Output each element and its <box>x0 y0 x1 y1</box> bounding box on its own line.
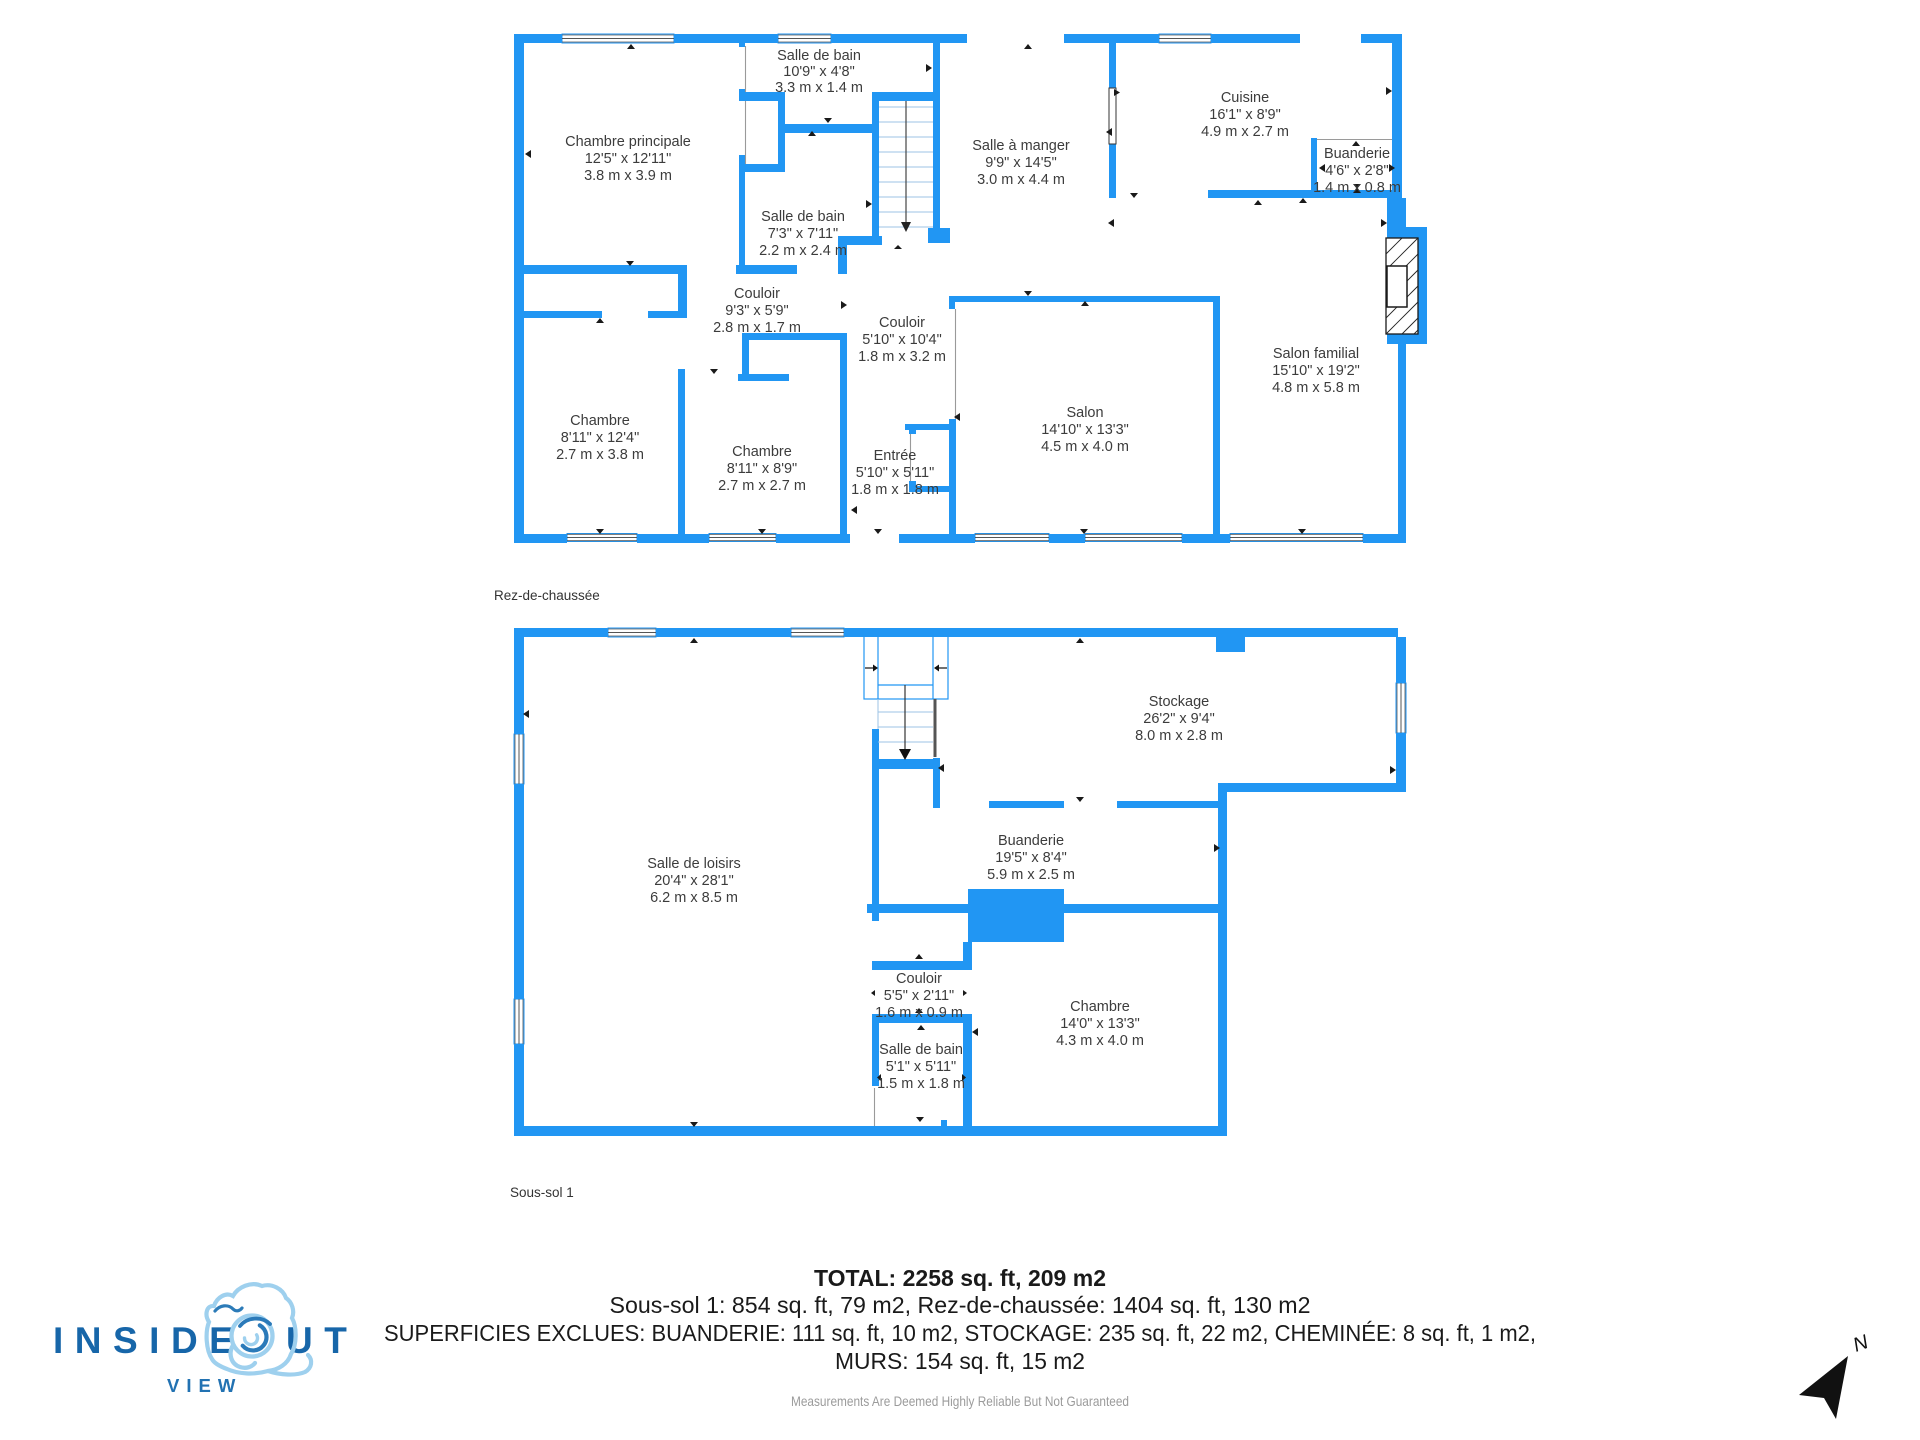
svg-text:4'6" x 2'8": 4'6" x 2'8" <box>1325 163 1388 179</box>
svg-text:2.2 m x 2.4 m: 2.2 m x 2.4 m <box>759 243 847 259</box>
svg-text:14'10" x 13'3": 14'10" x 13'3" <box>1041 422 1129 438</box>
svg-text:INSIDE: INSIDE <box>53 1320 245 1361</box>
svg-text:19'5" x 8'4": 19'5" x 8'4" <box>995 850 1066 866</box>
svg-text:MURS: 154 sq. ft, 15 m2: MURS: 154 sq. ft, 15 m2 <box>835 1348 1085 1374</box>
svg-text:3.0 m x 4.4 m: 3.0 m x 4.4 m <box>977 172 1065 188</box>
svg-text:1.6 m x 0.9 m: 1.6 m x 0.9 m <box>875 1005 963 1021</box>
svg-text:Salon familial: Salon familial <box>1273 346 1359 362</box>
svg-text:15'10" x 19'2": 15'10" x 19'2" <box>1272 363 1360 379</box>
svg-text:Chambre: Chambre <box>1070 999 1130 1015</box>
svg-text:8'11" x 8'9": 8'11" x 8'9" <box>727 461 797 477</box>
svg-text:Chambre principale: Chambre principale <box>565 134 691 150</box>
svg-text:Sous-sol 1: 854 sq. ft, 79 m2,: Sous-sol 1: 854 sq. ft, 79 m2, Rez-de-ch… <box>610 1292 1311 1318</box>
svg-text:Chambre: Chambre <box>732 444 792 460</box>
svg-text:4.9 m x 2.7 m: 4.9 m x 2.7 m <box>1201 124 1289 140</box>
svg-text:Salle à manger: Salle à manger <box>972 138 1070 154</box>
svg-text:5.9 m x 2.5 m: 5.9 m x 2.5 m <box>987 867 1075 883</box>
svg-text:8.0 m x 2.8 m: 8.0 m x 2.8 m <box>1135 728 1223 744</box>
svg-text:5'5" x 2'11": 5'5" x 2'11" <box>884 988 954 1004</box>
svg-text:1.8 m x 1.8 m: 1.8 m x 1.8 m <box>851 482 939 498</box>
svg-text:5'10" x 10'4": 5'10" x 10'4" <box>862 332 942 348</box>
svg-text:Couloir: Couloir <box>896 971 942 987</box>
svg-text:Stockage: Stockage <box>1149 694 1209 710</box>
svg-text:4.8 m x 5.8 m: 4.8 m x 5.8 m <box>1272 380 1360 396</box>
svg-text:2.7 m x 3.8 m: 2.7 m x 3.8 m <box>556 447 644 463</box>
svg-text:12'5" x 12'11": 12'5" x 12'11" <box>585 151 672 167</box>
svg-text:Couloir: Couloir <box>879 315 925 331</box>
svg-text:Salle de bain: Salle de bain <box>777 48 861 64</box>
svg-text:5'10" x 5'11": 5'10" x 5'11" <box>856 465 934 481</box>
svg-text:Entrée: Entrée <box>874 448 917 464</box>
svg-text:TOTAL: 2258 sq. ft, 209 m2: TOTAL: 2258 sq. ft, 209 m2 <box>814 1265 1106 1291</box>
svg-text:Buanderie: Buanderie <box>998 833 1064 849</box>
svg-text:1.4 m x 0.8 m: 1.4 m x 0.8 m <box>1313 180 1401 196</box>
svg-text:14'0" x 13'3": 14'0" x 13'3" <box>1060 1016 1140 1032</box>
svg-text:Sous-sol 1: Sous-sol 1 <box>510 1185 574 1200</box>
svg-text:9'9" x 14'5": 9'9" x 14'5" <box>985 155 1056 171</box>
svg-text:5'1" x 5'11": 5'1" x 5'11" <box>886 1059 956 1075</box>
svg-text:20'4" x 28'1": 20'4" x 28'1" <box>654 873 734 889</box>
svg-text:Cuisine: Cuisine <box>1221 90 1269 106</box>
svg-text:2.7 m x 2.7 m: 2.7 m x 2.7 m <box>718 478 806 494</box>
svg-text:VIEW: VIEW <box>167 1375 242 1396</box>
svg-text:Salle de bain: Salle de bain <box>879 1042 963 1058</box>
svg-text:1.5 m x 1.8 m: 1.5 m x 1.8 m <box>877 1076 965 1092</box>
svg-text:26'2" x 9'4": 26'2" x 9'4" <box>1143 711 1214 727</box>
svg-text:4.5 m x 4.0 m: 4.5 m x 4.0 m <box>1041 439 1129 455</box>
svg-text:Salle de bain: Salle de bain <box>761 209 845 225</box>
svg-text:Salle de loisirs: Salle de loisirs <box>647 856 741 872</box>
svg-text:3.8 m x 3.9 m: 3.8 m x 3.9 m <box>584 168 672 184</box>
svg-text:Rez-de-chaussée: Rez-de-chaussée <box>494 588 600 603</box>
svg-text:3.3 m x 1.4 m: 3.3 m x 1.4 m <box>775 80 863 96</box>
svg-text:Measurements Are Deemed Highly: Measurements Are Deemed Highly Reliable … <box>791 1393 1129 1409</box>
svg-text:6.2 m x 8.5 m: 6.2 m x 8.5 m <box>650 890 738 906</box>
svg-text:16'1" x 8'9": 16'1" x 8'9" <box>1209 107 1280 123</box>
svg-text:Couloir: Couloir <box>734 286 780 302</box>
svg-text:9'3" x 5'9": 9'3" x 5'9" <box>725 303 788 319</box>
svg-text:8'11" x 12'4": 8'11" x 12'4" <box>561 430 639 446</box>
svg-text:SUPERFICIES EXCLUES: BUANDERIE: SUPERFICIES EXCLUES: BUANDERIE: 111 sq. … <box>384 1320 1536 1346</box>
svg-text:7'3" x 7'11": 7'3" x 7'11" <box>768 226 838 242</box>
svg-text:4.3 m x 4.0 m: 4.3 m x 4.0 m <box>1056 1033 1144 1049</box>
svg-text:Chambre: Chambre <box>570 413 630 429</box>
svg-text:2.8 m x 1.7 m: 2.8 m x 1.7 m <box>713 320 801 336</box>
svg-text:Salon: Salon <box>1066 405 1103 421</box>
svg-text:10'9" x 4'8": 10'9" x 4'8" <box>783 64 854 80</box>
svg-text:1.8 m x 3.2 m: 1.8 m x 3.2 m <box>858 349 946 365</box>
svg-text:Buanderie: Buanderie <box>1324 146 1390 162</box>
